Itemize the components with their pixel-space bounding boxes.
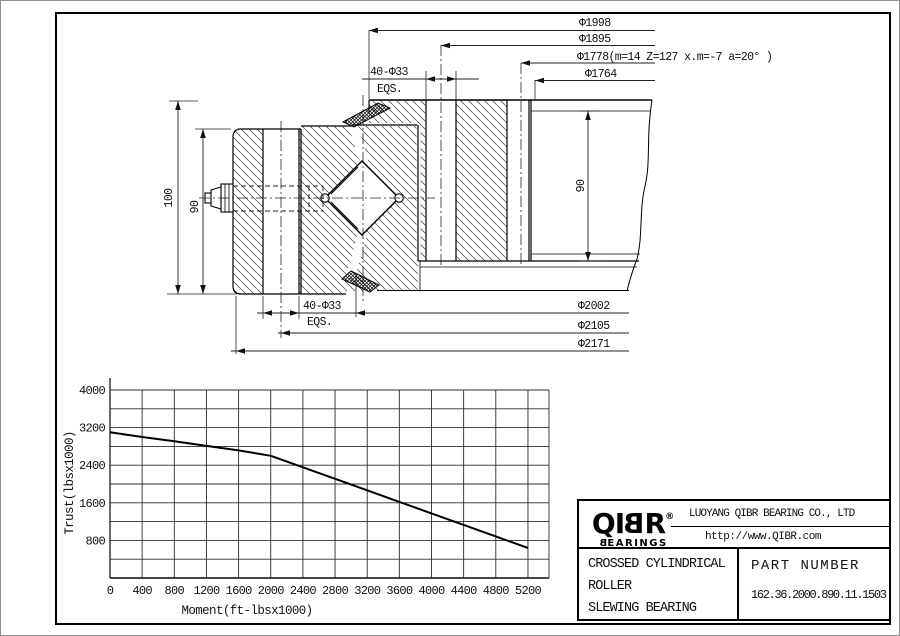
chart-y-axis-title: Trust(lbsx1000): [63, 431, 77, 535]
dim-height-90-right: 90: [575, 179, 588, 192]
dim-height-90-left: 90: [189, 200, 202, 213]
x-tick-label: 5200: [515, 584, 542, 598]
qibr-logo: QIBR® BEARINGS: [587, 503, 679, 549]
x-tick-label: 0: [107, 584, 114, 598]
x-tick-label: 4000: [418, 584, 445, 598]
part-number-cell: PART NUMBER 162.36.2000.890.11.1503: [737, 549, 889, 620]
thrust-moment-chart: 0400800120016002000240028003200360040004…: [61, 371, 561, 631]
dim-height-100: 100: [163, 188, 176, 208]
drawing-sheet: Φ1998 Φ1895 Φ1778(m=14 Z=127 x.m=-7 a=20…: [0, 0, 900, 636]
dim-gear-1778: Φ1778(m=14 Z=127 x.m=-7 a=20° ): [577, 51, 772, 64]
dim-holes-bottom: 40-Φ33: [303, 300, 342, 313]
x-tick-label: 2800: [322, 584, 349, 598]
x-tick-label: 3200: [354, 584, 381, 598]
dim-od-2002: Φ2002: [578, 300, 610, 313]
dim-bcd-2105: Φ2105: [578, 320, 610, 333]
x-tick-label: 400: [132, 584, 152, 598]
x-tick-label: 4400: [451, 584, 478, 598]
dim-holes-bottom-eqs: EQS.: [307, 316, 332, 329]
title-block-header: QIBR® BEARINGS LUOYANG QIBR BEARING CO.,…: [579, 501, 889, 547]
x-tick-label: 1600: [226, 584, 253, 598]
dim-od-2171: Φ2171: [578, 338, 610, 351]
x-tick-label: 2400: [290, 584, 317, 598]
x-tick-label: 2000: [258, 584, 285, 598]
dim-holes-top: 40-Φ33: [370, 66, 409, 79]
title-block: QIBR® BEARINGS LUOYANG QIBR BEARING CO.,…: [577, 499, 891, 621]
title-block-body: CROSSED CYLINDRICAL ROLLER SLEWING BEARI…: [579, 547, 889, 619]
x-tick-label: 800: [165, 584, 185, 598]
part-number-label: PART NUMBER: [751, 558, 889, 574]
y-tick-label: 4000: [79, 384, 106, 398]
header-divider: [671, 526, 889, 527]
dim-od-1998: Φ1998: [579, 17, 611, 30]
y-tick-label: 2400: [79, 459, 106, 473]
product-line-1: CROSSED CYLINDRICAL: [588, 554, 737, 576]
y-tick-label: 1600: [79, 497, 106, 511]
x-tick-label: 4800: [483, 584, 510, 598]
registered-mark-icon: ®: [665, 512, 674, 522]
company-name: LUOYANG QIBR BEARING CO., LTD: [689, 508, 854, 520]
dim-holes-top-eqs: EQS.: [377, 83, 402, 96]
dim-tip-1764: Φ1764: [585, 68, 617, 81]
part-number-value: 162.36.2000.890.11.1503: [751, 588, 889, 602]
product-line-3: SLEWING BEARING: [588, 598, 737, 620]
y-tick-label: 3200: [79, 422, 106, 436]
product-name: CROSSED CYLINDRICAL ROLLER SLEWING BEARI…: [579, 549, 737, 620]
x-tick-label: 1200: [193, 584, 220, 598]
y-tick-label: 800: [85, 534, 105, 548]
x-tick-label: 3600: [386, 584, 413, 598]
chart-x-axis-title: Moment(ft-lbsx1000): [181, 604, 312, 618]
capacity-curve: [110, 432, 528, 548]
website-url: http://www.QIBR.com: [705, 531, 821, 543]
dim-bcd-1895: Φ1895: [579, 33, 611, 46]
product-line-2: ROLLER: [588, 576, 737, 598]
